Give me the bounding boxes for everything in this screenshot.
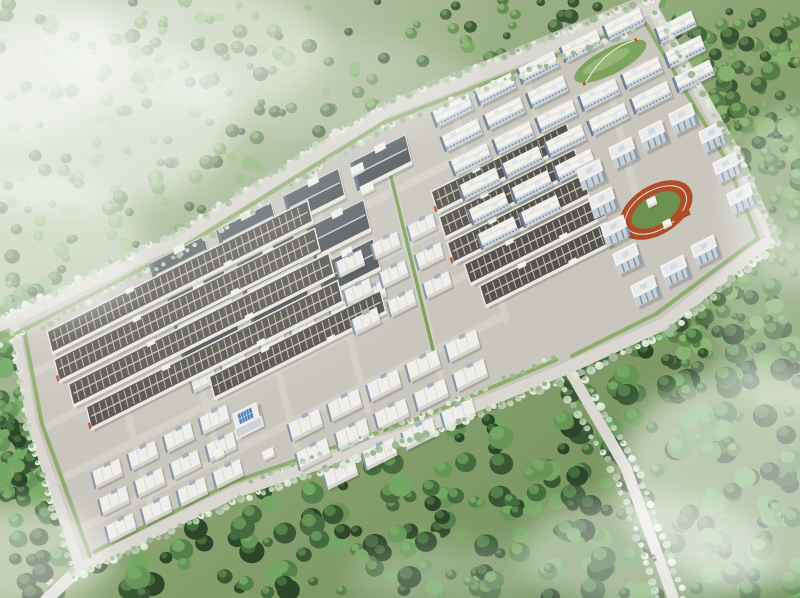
scene-svg — [0, 0, 800, 598]
haze — [0, 0, 800, 598]
aerial-render-image — [0, 0, 800, 598]
